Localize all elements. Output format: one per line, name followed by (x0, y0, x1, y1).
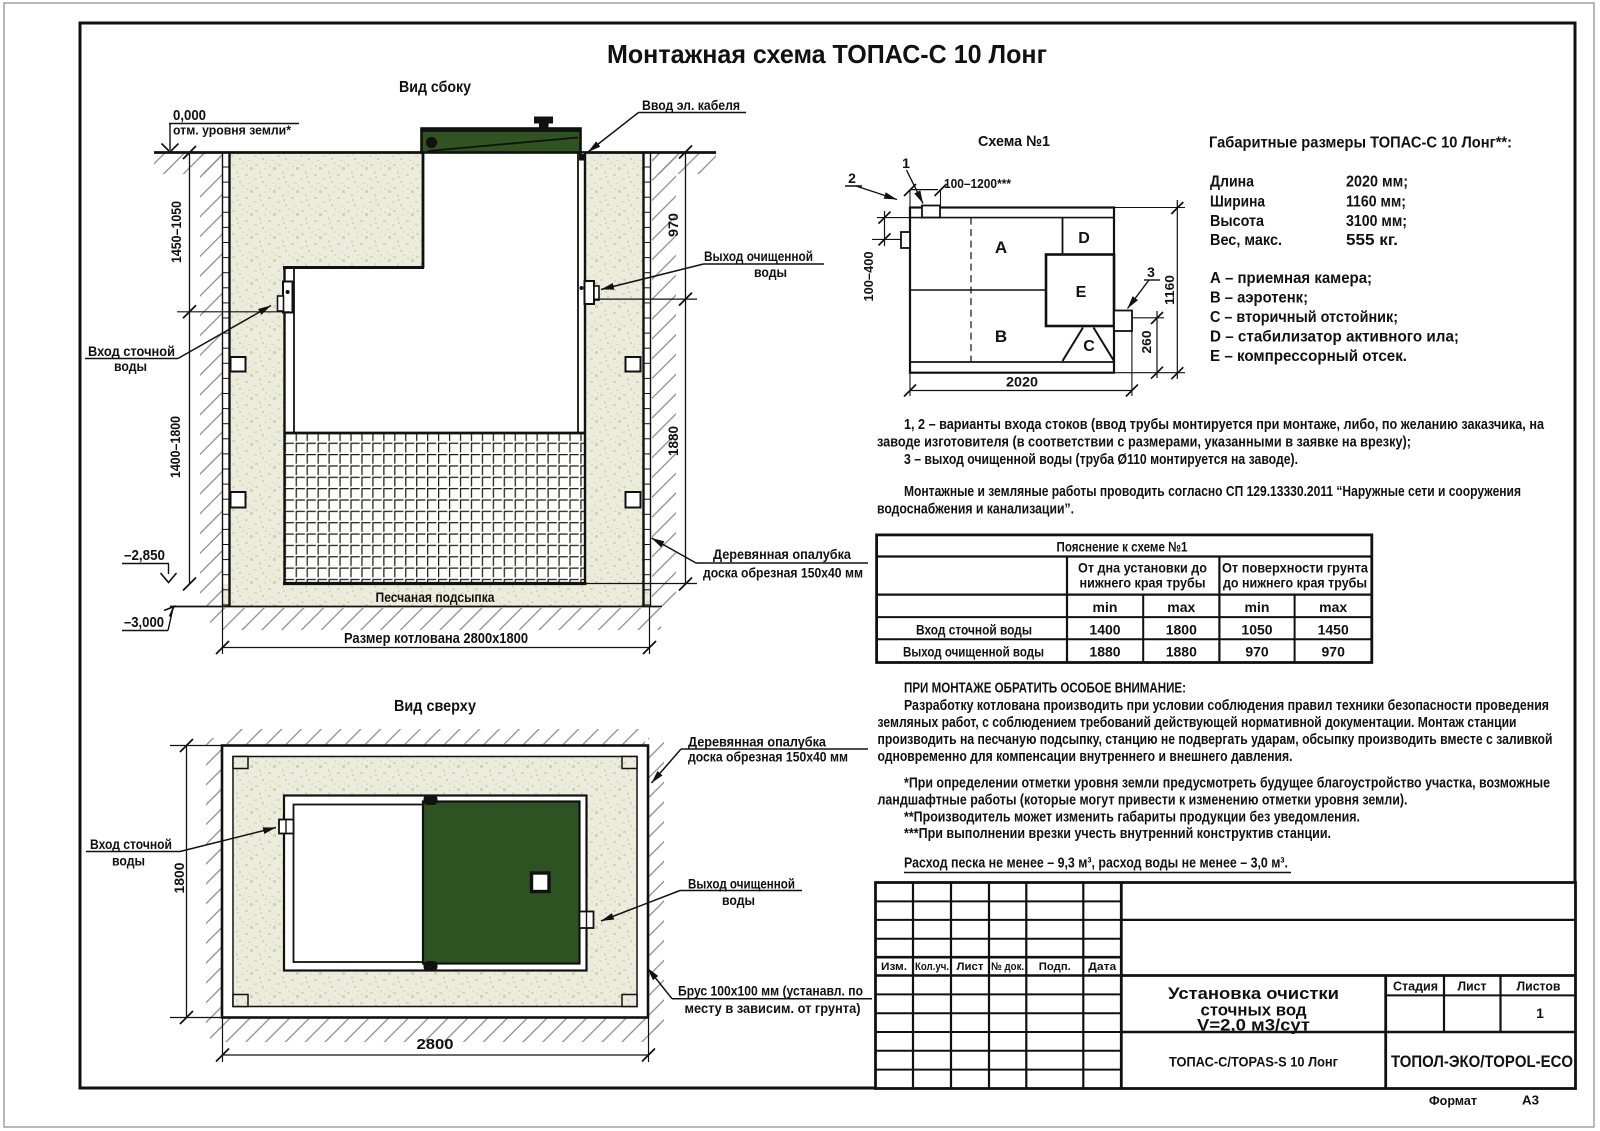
svg-text:ТОПАС-С/TOPAS-S 10 Лонг: ТОПАС-С/TOPAS-S 10 Лонг (1169, 1055, 1338, 1070)
svg-text:***При выполнении врезки учест: ***При выполнении врезки учесть внутренн… (904, 826, 1331, 842)
svg-text:А – приемная камера;: А – приемная камера; (1210, 270, 1372, 287)
svg-text:Листов: Листов (1517, 980, 1561, 994)
svg-text:Пояснение к схеме №1: Пояснение к схеме №1 (1057, 539, 1188, 555)
svg-text:D: D (1078, 230, 1090, 247)
svg-text:Кол.уч.: Кол.уч. (915, 961, 949, 973)
svg-text:В – аэротенк;: В – аэротенк; (1210, 290, 1308, 307)
svg-text:1160 мм;: 1160 мм; (1346, 194, 1406, 211)
svg-text:Песчаная подсыпка: Песчаная подсыпка (376, 589, 495, 605)
svg-text:Выход очищенной воды: Выход очищенной воды (903, 644, 1044, 660)
svg-text:Расход песка не менее – 9,3 м³: Расход песка не менее – 9,3 м³, расход в… (904, 856, 1288, 872)
svg-text:min: min (1093, 599, 1118, 615)
svg-text:Установка очистки: Установка очистки (1168, 985, 1339, 1003)
svg-text:Брус 100х100 мм (устанавл. по: Брус 100х100 мм (устанавл. по (678, 983, 863, 999)
svg-text:1, 2 – варианты входа стоков: 1, 2 – варианты входа стоков (ввод трубы… (904, 417, 1545, 433)
svg-text:Дата: Дата (1088, 961, 1117, 973)
svg-text:ПРИ МОНТАЖЕ ОБРАТИТЬ ОСОБОЕ ВН: ПРИ МОНТАЖЕ ОБРАТИТЬ ОСОБОЕ ВНИМАНИЕ: (904, 681, 1186, 697)
svg-text:100–1200***: 100–1200*** (944, 176, 1012, 191)
svg-text:Разработку котлована производи: Разработку котлована производить при усл… (904, 698, 1549, 714)
svg-text:ТОПОЛ-ЭКО/TOPOL-ECO: ТОПОЛ-ЭКО/TOPOL-ECO (1391, 1052, 1573, 1071)
svg-text:1450–1050: 1450–1050 (168, 201, 184, 263)
svg-text:**Производитель может изменить: **Производитель может изменить габариты … (904, 810, 1360, 826)
svg-text:Выход очищенной: Выход очищенной (704, 248, 813, 264)
svg-text:до нижнего края трубы: до нижнего края трубы (1223, 576, 1367, 591)
svg-text:воды: воды (114, 358, 147, 374)
svg-text:Выход очищенной: Выход очищенной (688, 876, 795, 892)
svg-text:доска обрезная 150х40 мм: доска обрезная 150х40 мм (703, 565, 863, 581)
svg-text:Вход сточной воды: Вход сточной воды (916, 622, 1032, 638)
svg-text:ландшафтные работы (которые мо: ландшафтные работы (которые могут привес… (878, 793, 1408, 809)
svg-text:Размер котлована 2800х1800: Размер котлована 2800х1800 (344, 630, 528, 647)
svg-text:1800: 1800 (1166, 622, 1197, 638)
svg-text:Схема №1: Схема №1 (978, 133, 1050, 150)
svg-text:воды: воды (754, 264, 787, 280)
svg-text:1400: 1400 (1089, 622, 1120, 638)
svg-text:Монтажная схема ТОПАС-С 10 Лон: Монтажная схема ТОПАС-С 10 Лонг (607, 39, 1047, 69)
svg-text:земляных работ, с соблюдением: земляных работ, с соблюдением требований… (878, 715, 1517, 731)
svg-text:водоснабжения и канализации”.: водоснабжения и канализации”. (877, 502, 1074, 518)
svg-text:min: min (1245, 599, 1270, 615)
svg-text:max: max (1319, 599, 1347, 615)
svg-text:100–400: 100–400 (861, 252, 876, 302)
svg-text:–3,000: –3,000 (124, 614, 164, 631)
svg-text:В: В (995, 327, 1007, 346)
svg-text:V=2,0 м3/сут: V=2,0 м3/сут (1197, 1017, 1310, 1035)
svg-text:Монтажные и земляные работы пр: Монтажные и земляные работы проводить со… (904, 484, 1521, 500)
svg-text:одновременно для компенсации в: одновременно для компенсации внутреннего… (878, 749, 1293, 765)
svg-text:От дна установки до: От дна установки до (1078, 561, 1207, 576)
svg-text:–2,850: –2,850 (124, 547, 165, 564)
svg-text:1880: 1880 (1089, 644, 1120, 660)
svg-text:№ док.: № док. (991, 961, 1024, 973)
svg-text:1450: 1450 (1318, 622, 1349, 638)
svg-text:Вход сточной: Вход сточной (88, 343, 175, 359)
svg-text:А3: А3 (1522, 1094, 1539, 1108)
svg-text:С – вторичный отстойник;: С – вторичный отстойник; (1210, 309, 1398, 326)
svg-text:Ширина: Ширина (1210, 194, 1265, 211)
svg-text:Габаритные размеры ТОПАС-С 10: Габаритные размеры ТОПАС-С 10 Лонг**: (1209, 135, 1512, 152)
svg-text:Е – компрессорный отсек.: Е – компрессорный отсек. (1210, 348, 1407, 365)
svg-text:От поверхности грунта: От поверхности грунта (1222, 561, 1368, 576)
svg-text:Лист: Лист (1458, 980, 1487, 994)
svg-text:Деревянная опалубка: Деревянная опалубка (713, 546, 851, 562)
svg-text:Длина: Длина (1210, 174, 1254, 191)
svg-text:Высота: Высота (1210, 213, 1264, 230)
svg-text:воды: воды (112, 853, 145, 869)
svg-text:Подп.: Подп. (1039, 961, 1071, 973)
svg-text:1880: 1880 (1166, 644, 1197, 660)
svg-text:0,000: 0,000 (173, 107, 206, 124)
svg-text:отм. уровня земли*: отм. уровня земли* (173, 123, 292, 138)
svg-text:1880: 1880 (665, 426, 681, 456)
svg-text:2: 2 (848, 170, 856, 186)
svg-text:А: А (995, 238, 1007, 257)
svg-text:Лист: Лист (957, 961, 985, 973)
svg-text:1050: 1050 (1241, 622, 1272, 638)
svg-text:1: 1 (1536, 1005, 1544, 1021)
svg-text:3 – выход очищенной воды (труб: 3 – выход очищенной воды (труба Ø110 мон… (904, 452, 1298, 468)
svg-text:970: 970 (1322, 644, 1346, 660)
svg-text:заводе изготовителя (в соответ: заводе изготовителя (в соответствии с ра… (877, 435, 1411, 451)
svg-text:Е: Е (1076, 284, 1087, 301)
svg-text:Вид сбоку: Вид сбоку (399, 79, 471, 96)
svg-text:доска обрезная 150х40 мм: доска обрезная 150х40 мм (688, 749, 848, 765)
svg-text:*При определении отметки уровн: *При определении отметки уровня земли пр… (904, 776, 1550, 792)
svg-text:Формат: Формат (1429, 1094, 1477, 1108)
svg-text:D – стабилизатор активного ила: D – стабилизатор активного ила; (1210, 329, 1459, 346)
svg-text:3100 мм;: 3100 мм; (1346, 213, 1407, 230)
svg-text:260: 260 (1139, 331, 1154, 354)
svg-text:1160: 1160 (1162, 275, 1177, 305)
svg-text:С: С (1083, 338, 1095, 355)
svg-text:воды: воды (722, 892, 755, 908)
svg-text:Вес, макс.: Вес, макс. (1210, 232, 1282, 249)
svg-text:Вид сверху: Вид сверху (394, 698, 476, 715)
svg-text:Изм.: Изм. (881, 961, 907, 973)
svg-text:Вход сточной: Вход сточной (90, 836, 172, 852)
svg-text:555 кг.: 555 кг. (1346, 232, 1398, 249)
svg-text:970: 970 (665, 213, 681, 237)
svg-text:970: 970 (1245, 644, 1269, 660)
svg-text:max: max (1167, 599, 1195, 615)
svg-text:месту в зависим. от грунта): месту в зависим. от грунта) (685, 1000, 861, 1016)
svg-text:1400–1800: 1400–1800 (167, 416, 183, 478)
svg-text:1800: 1800 (171, 862, 187, 893)
svg-text:2800: 2800 (417, 1036, 454, 1053)
svg-text:Стадия: Стадия (1393, 980, 1438, 994)
svg-text:2020: 2020 (1006, 374, 1038, 390)
svg-text:1: 1 (902, 155, 910, 171)
svg-text:Деревянная опалубка: Деревянная опалубка (688, 734, 826, 750)
svg-text:нижнего края трубы: нижнего края трубы (1080, 576, 1206, 591)
svg-text:3: 3 (1147, 264, 1155, 280)
svg-text:Ввод эл. кабеля: Ввод эл. кабеля (642, 97, 740, 113)
svg-text:производить на песчаную подсып: производить на песчаную подсыпку, станци… (878, 732, 1553, 748)
svg-text:2020 мм;: 2020 мм; (1346, 174, 1408, 191)
